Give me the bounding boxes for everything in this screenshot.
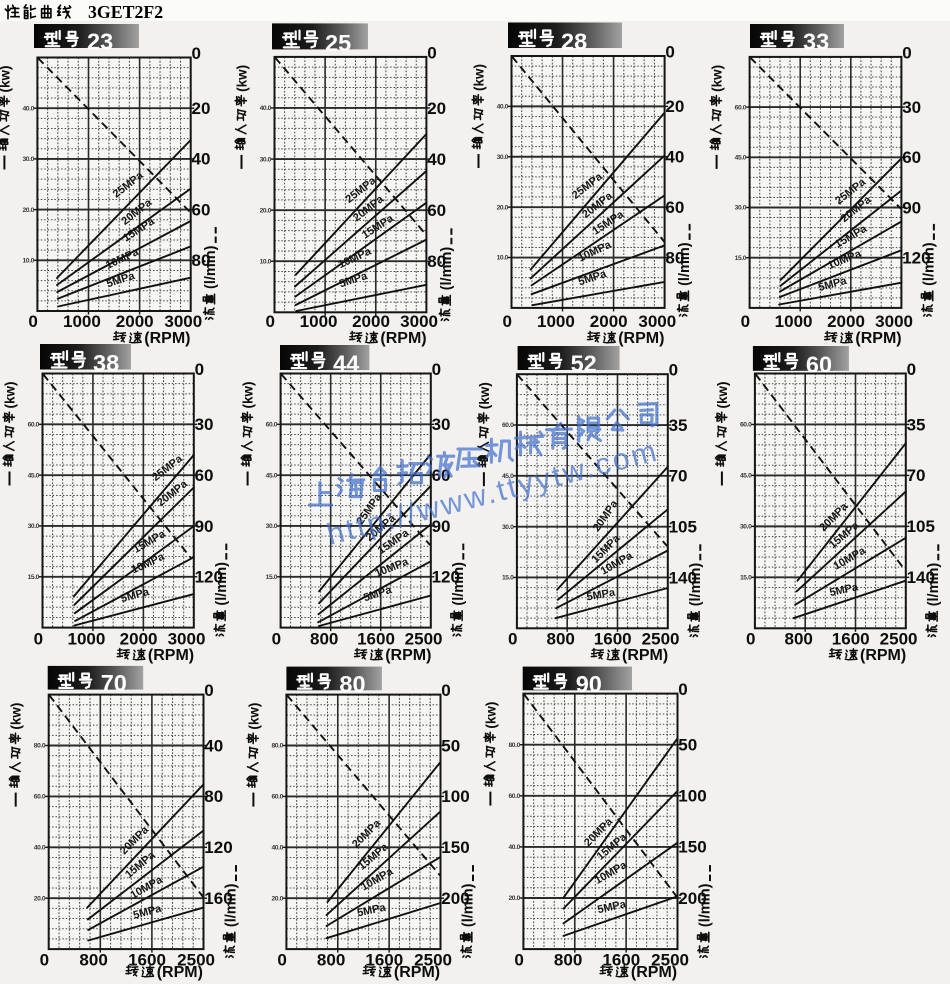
- svg-text:(kw): (kw): [241, 382, 256, 409]
- svg-text:(RPM): (RPM): [618, 330, 664, 347]
- svg-text:3000: 3000: [168, 630, 206, 649]
- svg-text:0: 0: [427, 43, 436, 62]
- svg-text:2500: 2500: [642, 630, 680, 649]
- svg-text:(l/min): (l/min): [921, 242, 937, 286]
- svg-text:80: 80: [204, 787, 223, 806]
- svg-text:1000: 1000: [63, 312, 101, 331]
- svg-text:1000: 1000: [300, 312, 338, 331]
- svg-text:(RPM): (RPM): [631, 964, 677, 981]
- svg-text:30: 30: [195, 415, 214, 434]
- svg-text:(RPM): (RPM): [144, 330, 190, 347]
- svg-text:35: 35: [907, 415, 926, 434]
- svg-text:10.0: 10.0: [497, 255, 509, 262]
- svg-text:2500: 2500: [880, 630, 918, 649]
- svg-text:20.0: 20.0: [508, 895, 520, 902]
- svg-text:(RPM): (RPM): [622, 647, 668, 664]
- svg-text:38: 38: [93, 350, 119, 376]
- svg-text:(l/min): (l/min): [677, 242, 693, 286]
- svg-text:105: 105: [907, 517, 935, 536]
- svg-text:60: 60: [665, 198, 684, 217]
- svg-text:120: 120: [204, 838, 232, 857]
- svg-text:15.0: 15.0: [266, 574, 278, 581]
- svg-text:3000: 3000: [875, 312, 913, 331]
- svg-text:0: 0: [34, 630, 43, 649]
- svg-text:0: 0: [28, 312, 37, 331]
- svg-text:800: 800: [547, 630, 575, 649]
- svg-text:20.0: 20.0: [34, 895, 46, 902]
- svg-text:60.0: 60.0: [34, 794, 46, 801]
- svg-text:2000: 2000: [116, 312, 154, 331]
- svg-text:0: 0: [195, 360, 204, 379]
- svg-text:25: 25: [325, 30, 351, 56]
- svg-text:60.0: 60.0: [508, 793, 520, 800]
- svg-text:(RPM): (RPM): [380, 330, 426, 347]
- svg-text:40.0: 40.0: [497, 104, 509, 111]
- svg-text:(kw): (kw): [483, 702, 498, 729]
- svg-text:3000: 3000: [638, 312, 676, 331]
- svg-text:800: 800: [310, 630, 338, 649]
- svg-text:40.0: 40.0: [34, 845, 46, 852]
- svg-text:100: 100: [678, 787, 706, 806]
- svg-text:800: 800: [554, 951, 582, 970]
- svg-text:30.0: 30.0: [266, 523, 278, 530]
- svg-text:20.0: 20.0: [22, 207, 34, 214]
- svg-text:60: 60: [902, 148, 921, 167]
- svg-text:0: 0: [514, 951, 523, 970]
- svg-text:30.0: 30.0: [735, 205, 747, 212]
- svg-text:20.0: 20.0: [271, 895, 283, 902]
- svg-text:(RPM): (RPM): [157, 964, 203, 981]
- svg-text:60.0: 60.0: [271, 794, 283, 801]
- svg-text:800: 800: [317, 951, 345, 970]
- svg-text:80.0: 80.0: [34, 743, 46, 750]
- svg-text:0: 0: [432, 360, 441, 379]
- svg-text:20.0: 20.0: [497, 204, 509, 211]
- svg-text:60: 60: [427, 201, 446, 220]
- svg-text:52: 52: [571, 351, 597, 377]
- svg-text:(l/min): (l/min): [224, 883, 240, 927]
- svg-text:(l/min): (l/min): [926, 563, 942, 607]
- svg-text:3GET2F2: 3GET2F2: [88, 2, 163, 22]
- svg-text:150: 150: [441, 838, 469, 857]
- svg-text:70: 70: [101, 670, 127, 696]
- svg-text:30.0: 30.0: [740, 524, 752, 531]
- svg-text:(l/min): (l/min): [439, 247, 455, 291]
- svg-text:80.0: 80.0: [271, 743, 283, 750]
- svg-text:0: 0: [678, 680, 687, 699]
- svg-text:2000: 2000: [827, 312, 865, 331]
- svg-text:0: 0: [907, 360, 916, 379]
- svg-text:20: 20: [192, 99, 211, 118]
- svg-text:15.0: 15.0: [502, 575, 514, 582]
- svg-text:40: 40: [204, 736, 223, 755]
- svg-text:3000: 3000: [164, 312, 202, 331]
- svg-text:0: 0: [204, 681, 213, 700]
- svg-text:0: 0: [902, 43, 911, 62]
- svg-text:(kw): (kw): [472, 64, 487, 91]
- svg-text:45.0: 45.0: [740, 473, 752, 480]
- svg-text:(l/min): (l/min): [461, 883, 477, 927]
- svg-text:45.0: 45.0: [735, 155, 747, 162]
- svg-text:35: 35: [669, 416, 688, 435]
- svg-text:(RPM): (RPM): [385, 647, 431, 664]
- svg-text:30.0: 30.0: [502, 524, 514, 531]
- svg-text:0: 0: [40, 951, 49, 970]
- svg-text:150: 150: [678, 838, 706, 857]
- svg-text:800: 800: [79, 951, 107, 970]
- svg-text:1600: 1600: [357, 630, 395, 649]
- svg-text:70: 70: [907, 466, 926, 485]
- svg-text:0: 0: [669, 361, 678, 380]
- svg-text:40.0: 40.0: [271, 845, 283, 852]
- svg-text:0: 0: [665, 43, 674, 62]
- svg-text:28: 28: [561, 29, 587, 55]
- svg-text:90: 90: [195, 517, 214, 536]
- svg-text:60.0: 60.0: [735, 104, 747, 111]
- svg-text:2500: 2500: [405, 630, 443, 649]
- svg-text:20.0: 20.0: [260, 207, 272, 214]
- svg-text:40: 40: [427, 150, 446, 169]
- svg-text:40.0: 40.0: [22, 105, 34, 112]
- svg-text:100: 100: [441, 787, 469, 806]
- svg-text:(RPM): (RPM): [148, 647, 194, 664]
- svg-text:0: 0: [502, 312, 511, 331]
- svg-text:70: 70: [669, 467, 688, 486]
- svg-text:(kw): (kw): [3, 382, 18, 409]
- svg-text:30.0: 30.0: [260, 156, 272, 163]
- svg-text:0: 0: [192, 44, 201, 63]
- svg-text:2000: 2000: [590, 312, 628, 331]
- svg-text:60.0: 60.0: [502, 422, 514, 429]
- svg-text:1000: 1000: [775, 312, 813, 331]
- svg-text:(kw): (kw): [235, 65, 250, 92]
- svg-text:20: 20: [427, 99, 446, 118]
- svg-text:60.0: 60.0: [266, 422, 278, 429]
- svg-text:(kw): (kw): [710, 65, 725, 92]
- svg-text:0: 0: [441, 681, 450, 700]
- svg-text:40: 40: [665, 148, 684, 167]
- svg-text:3000: 3000: [400, 312, 438, 331]
- svg-text:0: 0: [265, 312, 274, 331]
- svg-text:1000: 1000: [537, 312, 575, 331]
- svg-text:60.0: 60.0: [740, 422, 752, 429]
- svg-text:23: 23: [87, 29, 113, 55]
- svg-text:0: 0: [746, 630, 755, 649]
- svg-text:(kw): (kw): [9, 703, 24, 730]
- svg-text:40: 40: [192, 150, 211, 169]
- svg-text:1000: 1000: [67, 630, 105, 649]
- svg-text:2000: 2000: [120, 630, 158, 649]
- svg-text:0: 0: [741, 312, 750, 331]
- svg-text:33: 33: [803, 29, 829, 55]
- svg-text:(kw): (kw): [715, 382, 730, 409]
- svg-text:15.0: 15.0: [28, 574, 40, 581]
- svg-text:30: 30: [432, 415, 451, 434]
- svg-text:(RPM): (RPM): [855, 330, 901, 347]
- svg-text:800: 800: [785, 630, 813, 649]
- svg-text:(l/min): (l/min): [203, 245, 219, 289]
- svg-text:30.0: 30.0: [497, 154, 509, 161]
- svg-text:15.0: 15.0: [735, 255, 747, 262]
- svg-text:0: 0: [277, 951, 286, 970]
- svg-text:15.0: 15.0: [740, 575, 752, 582]
- svg-text:(l/min): (l/min): [214, 562, 230, 606]
- svg-text:10.0: 10.0: [22, 258, 34, 265]
- svg-text:40.0: 40.0: [508, 844, 520, 851]
- svg-text:1600: 1600: [832, 630, 870, 649]
- svg-text:1600: 1600: [594, 630, 632, 649]
- svg-text:0: 0: [272, 630, 281, 649]
- svg-text:80: 80: [339, 671, 365, 697]
- svg-text:(RPM): (RPM): [394, 964, 440, 981]
- svg-text:(l/min): (l/min): [688, 563, 704, 607]
- svg-text:80.0: 80.0: [508, 742, 520, 749]
- svg-text:60.0: 60.0: [28, 422, 40, 429]
- svg-text:(kw): (kw): [0, 66, 12, 93]
- svg-text:45.0: 45.0: [28, 472, 40, 479]
- svg-text:50: 50: [678, 736, 697, 755]
- svg-text:30.0: 30.0: [22, 156, 34, 163]
- svg-text:2000: 2000: [352, 312, 390, 331]
- svg-text:20: 20: [665, 97, 684, 116]
- svg-text:(kw): (kw): [477, 382, 492, 409]
- svg-text:30.0: 30.0: [28, 523, 40, 530]
- svg-text:10.0: 10.0: [260, 258, 272, 265]
- svg-text:(l/min): (l/min): [698, 883, 714, 927]
- svg-text:(RPM): (RPM): [860, 647, 906, 664]
- svg-text:50: 50: [441, 736, 460, 755]
- svg-text:0: 0: [508, 630, 517, 649]
- svg-text:(l/min): (l/min): [451, 562, 467, 606]
- svg-text:105: 105: [669, 518, 697, 537]
- svg-text:60: 60: [192, 200, 211, 219]
- svg-text:90: 90: [902, 198, 921, 217]
- svg-text:40.0: 40.0: [260, 105, 272, 112]
- svg-text:30: 30: [902, 98, 921, 117]
- svg-text:(kw): (kw): [246, 703, 261, 730]
- svg-text:45.0: 45.0: [266, 472, 278, 479]
- svg-text:60: 60: [195, 466, 214, 485]
